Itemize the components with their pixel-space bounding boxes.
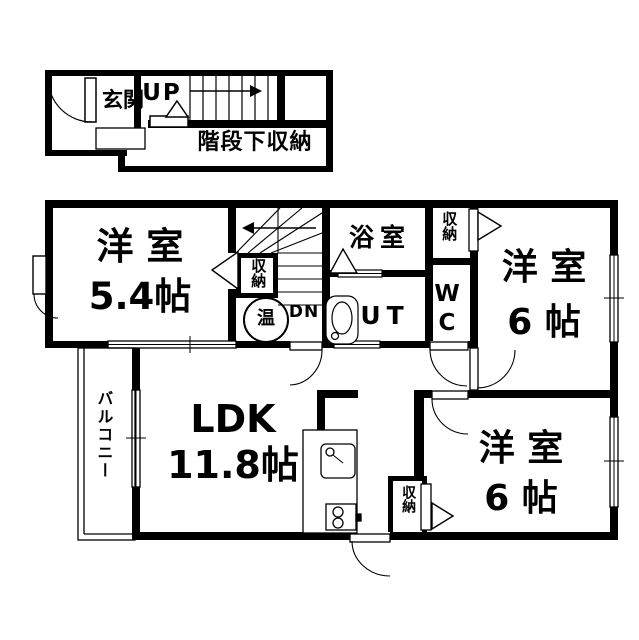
shoe-cabinet (96, 128, 145, 149)
label-toilet: W C (430, 280, 464, 338)
stove-knob (356, 514, 361, 521)
window-bedroom-west-south (108, 336, 236, 353)
stove-burner (333, 507, 343, 517)
wall (273, 253, 278, 298)
stairs-up-arrow (190, 85, 262, 97)
kitchen-faucet (326, 448, 334, 456)
wall (388, 476, 393, 537)
wall (425, 258, 478, 265)
label-closet-north: 収納 (440, 211, 457, 241)
label-balcony: バルコニー (94, 390, 112, 480)
label-ldk: LDK 11.8帖 (148, 396, 318, 488)
label-closet-south: 収納 (400, 485, 416, 513)
label-stair-closet: 収納 (249, 258, 266, 288)
label-stairs-down: DN (284, 303, 324, 323)
window-ldk-west (126, 390, 146, 487)
label-bedroom-east-north: 洋 室 6 帖 (479, 240, 609, 350)
kitchen-sink (321, 444, 355, 478)
wall (277, 76, 285, 128)
wall (236, 293, 278, 298)
wall (45, 70, 333, 76)
entrance-door (48, 78, 96, 122)
stairs-up (190, 76, 268, 120)
wall (388, 476, 427, 481)
label-utility: UT (350, 302, 420, 331)
label-under-stairs-storage: 階段下収納 (175, 130, 335, 155)
wall (322, 390, 358, 398)
door-bedroom-east-north (470, 348, 515, 390)
door-south-exit (350, 532, 390, 576)
label-bedroom-east-south: 洋 室 6 帖 (456, 424, 586, 524)
wall (45, 150, 127, 156)
folding-door-closet-south (421, 484, 453, 530)
door-wc (430, 341, 468, 386)
label-bedroom-west: 洋 室 5.4帖 (50, 222, 230, 322)
wall (45, 200, 618, 208)
door-ldk-from-stairs (290, 341, 322, 385)
wall (414, 390, 424, 480)
floor-plan: 玄関 UP 階段下収納 洋 室 5.4帖 収納 温 DN 浴室 収納 洋 室 6… (0, 0, 639, 640)
wall (118, 166, 333, 172)
label-bathroom: 浴室 (330, 224, 430, 253)
label-stairs-up: UP (136, 80, 188, 106)
window-bedroom-east-south (604, 417, 624, 507)
wall (468, 390, 618, 398)
label-water-heater: 温 (254, 309, 278, 330)
wall (118, 150, 125, 172)
stove-burner (333, 518, 343, 528)
